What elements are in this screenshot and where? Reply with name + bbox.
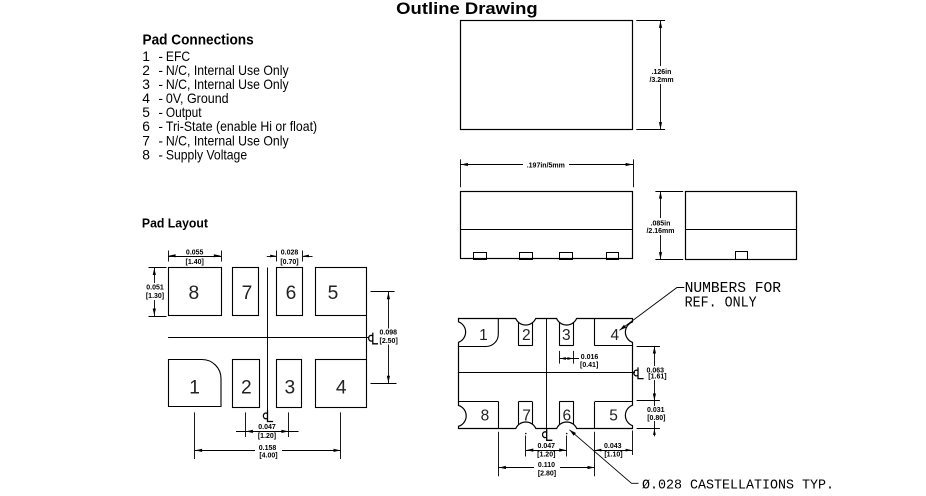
svg-text:Pad Connections: Pad Connections <box>143 31 254 48</box>
svg-text:3: 3 <box>562 327 571 344</box>
svg-text:1: 1 <box>189 378 200 399</box>
svg-text:3: 3 <box>284 378 295 399</box>
svg-text:[1.61]: [1.61] <box>648 374 666 381</box>
svg-text:7: 7 <box>522 407 531 424</box>
svg-text:6-Tri-State (enable Hi or floa: 6-Tri-State (enable Hi or float) <box>142 119 317 134</box>
svg-text:[0.80]: [0.80] <box>647 415 665 422</box>
svg-text:0.158: 0.158 <box>259 445 277 452</box>
svg-text:[1.30]: [1.30] <box>146 293 164 300</box>
svg-text:0.031: 0.031 <box>647 407 665 414</box>
svg-text:7: 7 <box>242 283 253 304</box>
svg-text:Pad Layout: Pad Layout <box>142 216 209 231</box>
svg-text:Ø.028 CASTELLATIONS TYP.: Ø.028 CASTELLATIONS TYP. <box>642 478 834 494</box>
svg-text:0.110: 0.110 <box>538 462 555 469</box>
svg-text:REF. ONLY: REF. ONLY <box>685 295 757 312</box>
svg-text:4: 4 <box>336 378 347 399</box>
svg-text:/2.16mm: /2.16mm <box>646 228 674 235</box>
svg-text:[0.41]: [0.41] <box>580 362 598 369</box>
svg-text:4: 4 <box>610 327 619 344</box>
svg-text:0.016: 0.016 <box>581 354 599 361</box>
svg-text:[1.40]: [1.40] <box>186 259 204 266</box>
svg-text:[1.10]: [1.10] <box>604 451 622 458</box>
svg-text:[0.70]: [0.70] <box>280 259 298 266</box>
svg-text:Outline Drawing: Outline Drawing <box>396 0 538 18</box>
svg-text:1: 1 <box>479 327 488 344</box>
svg-text:[1.20]: [1.20] <box>537 451 555 458</box>
svg-text:0.028: 0.028 <box>281 250 299 257</box>
svg-text:[4.00]: [4.00] <box>259 452 277 459</box>
svg-text:2: 2 <box>522 327 531 344</box>
svg-text:8: 8 <box>481 407 490 424</box>
svg-text:.197in/5mm: .197in/5mm <box>527 163 565 170</box>
svg-text:[1.20]: [1.20] <box>258 433 276 440</box>
svg-text:0.043: 0.043 <box>604 443 622 450</box>
svg-text:8: 8 <box>188 283 199 304</box>
svg-text:5: 5 <box>609 407 618 424</box>
svg-text:6: 6 <box>286 283 297 304</box>
svg-text:0.047: 0.047 <box>258 424 276 431</box>
svg-text:.085in: .085in <box>651 221 671 228</box>
svg-text:/3.2mm: /3.2mm <box>649 77 673 84</box>
svg-text:8-Supply Voltage: 8-Supply Voltage <box>142 147 247 162</box>
svg-text:5: 5 <box>328 283 339 304</box>
svg-text:[2.80]: [2.80] <box>538 471 556 478</box>
svg-text:0.098: 0.098 <box>380 330 398 337</box>
svg-text:.126in: .126in <box>652 69 672 76</box>
svg-text:0.051: 0.051 <box>146 285 164 292</box>
svg-text:6: 6 <box>562 407 571 424</box>
svg-text:2: 2 <box>241 378 252 399</box>
svg-text:[2.50]: [2.50] <box>380 338 398 345</box>
svg-text:1-EFC: 1-EFC <box>142 49 190 64</box>
svg-text:0.047: 0.047 <box>538 443 556 450</box>
svg-text:0.055: 0.055 <box>186 250 204 257</box>
